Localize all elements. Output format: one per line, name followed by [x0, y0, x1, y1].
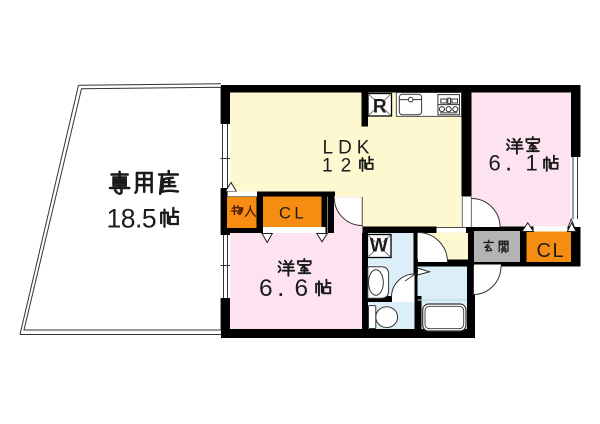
svg-text:6: 6 — [489, 151, 501, 176]
svg-text:12: 12 — [322, 156, 359, 177]
svg-text:6: 6 — [295, 275, 309, 302]
svg-text:CL: CL — [537, 240, 566, 262]
svg-text:R: R — [373, 96, 387, 117]
svg-text:CL: CL — [279, 205, 307, 223]
svg-text:1: 1 — [526, 151, 538, 176]
svg-text:W: W — [370, 236, 388, 257]
svg-text:6: 6 — [259, 275, 273, 302]
svg-text:18.5: 18.5 — [107, 204, 157, 234]
svg-text:.: . — [505, 147, 512, 177]
svg-text:.: . — [277, 272, 285, 302]
